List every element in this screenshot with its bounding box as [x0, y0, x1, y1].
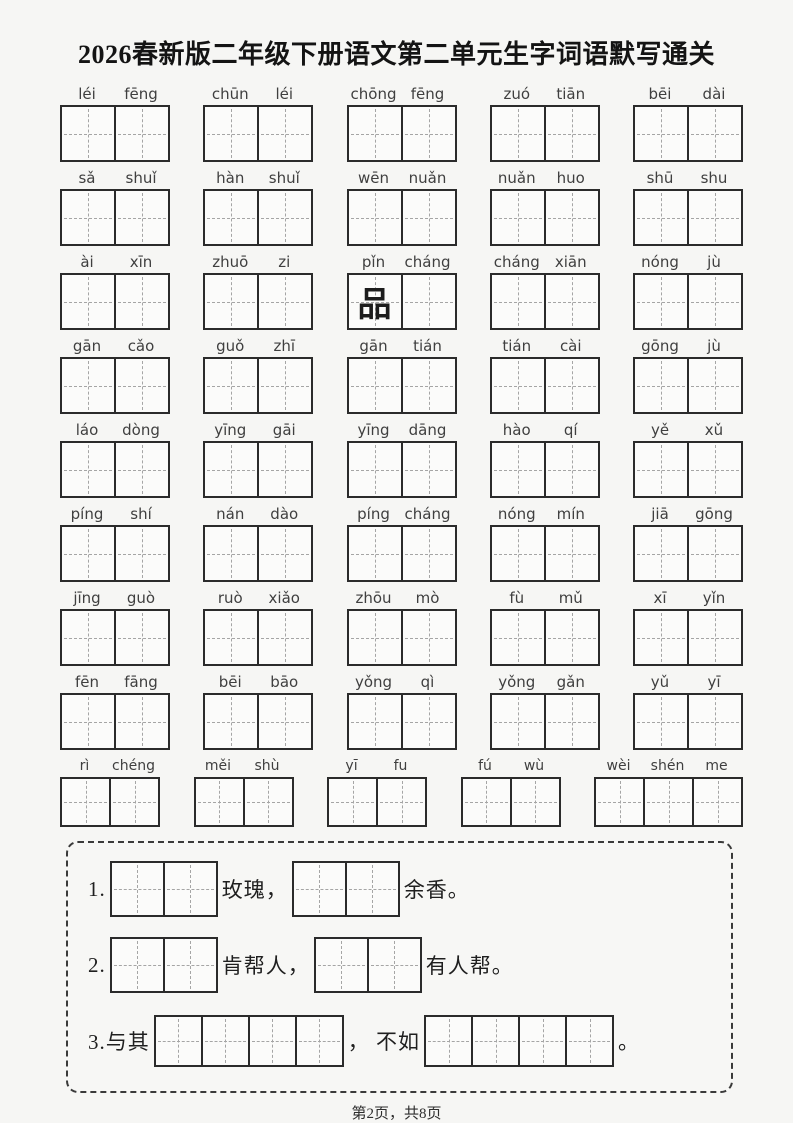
pinyin-syllable: xīn	[114, 253, 168, 271]
writing-box	[60, 357, 170, 414]
writing-cell	[243, 779, 292, 825]
pinyin-syllable: píng	[60, 505, 114, 523]
pinyin-row: yīnggāi	[203, 421, 313, 439]
writing-cell	[376, 779, 425, 825]
writing-cell	[205, 191, 257, 244]
writing-cell	[544, 443, 598, 496]
pinyin-row: nándào	[203, 505, 313, 523]
writing-cell	[205, 359, 257, 412]
pinyin-syllable: yǒng	[490, 673, 544, 691]
word-group: yīnggāi	[203, 421, 313, 498]
writing-cell	[687, 443, 741, 496]
pinyin-syllable: dòng	[114, 421, 168, 439]
writing-box	[490, 357, 600, 414]
pinyin-row: nóngjù	[633, 253, 743, 271]
pinyin-row: jiāgōng	[633, 505, 743, 523]
exercise-text: ， 不如	[348, 1026, 420, 1056]
writing-box	[60, 693, 170, 750]
writing-cell	[62, 275, 114, 328]
pinyin-syllable: nán	[203, 505, 257, 523]
word-row: léifēngchūnléichōngfēngzuótiānbēidài	[60, 85, 743, 162]
writing-cell	[109, 779, 158, 825]
writing-cell	[544, 107, 598, 160]
writing-box	[633, 693, 743, 750]
pinyin-row: xīyǐn	[633, 589, 743, 607]
exercise-item: 3.与其， 不如。	[88, 1011, 707, 1071]
word-group: gāncǎo	[60, 337, 170, 414]
writing-cell	[635, 527, 687, 580]
writing-cell	[492, 107, 544, 160]
writing-box	[203, 105, 313, 162]
writing-box	[490, 189, 600, 246]
word-group: rìchéng	[60, 757, 160, 827]
writing-cell	[62, 695, 114, 748]
word-group: jiāgōng	[633, 505, 743, 582]
exercise-item: 1.玫瑰，余香。	[88, 859, 707, 919]
pinyin-syllable: zi	[257, 253, 311, 271]
word-group: zhuōzi	[203, 253, 313, 330]
writing-cell	[114, 695, 168, 748]
writing-cell	[463, 779, 510, 825]
pinyin-syllable: yīng	[347, 421, 401, 439]
pinyin-syllable: hào	[490, 421, 544, 439]
word-group: zuótiān	[490, 85, 600, 162]
writing-cell	[492, 191, 544, 244]
pinyin-syllable: bēi	[633, 85, 687, 103]
answer-blank-boxes	[424, 1015, 614, 1067]
writing-cell	[596, 779, 643, 825]
writing-box	[347, 525, 457, 582]
word-group: shūshu	[633, 169, 743, 246]
writing-cell	[257, 527, 311, 580]
word-group: bēidài	[633, 85, 743, 162]
exercise-text: 3.与其	[88, 1026, 150, 1056]
writing-cell	[114, 611, 168, 664]
pinyin-row: hànshuǐ	[203, 169, 313, 187]
word-group: nóngjù	[633, 253, 743, 330]
writing-cell	[62, 527, 114, 580]
pinyin-row: wēnnuǎn	[347, 169, 457, 187]
word-group: xīyǐn	[633, 589, 743, 666]
pinyin-syllable: chōng	[347, 85, 401, 103]
pinyin-syllable: jiā	[633, 505, 687, 523]
writing-box	[490, 525, 600, 582]
pinyin-row: yǒnggǎn	[490, 673, 600, 691]
writing-cell	[687, 359, 741, 412]
writing-box	[633, 525, 743, 582]
writing-cell	[367, 939, 420, 991]
word-group: fúwù	[461, 757, 561, 827]
writing-box	[461, 777, 561, 827]
pinyin-row: měishù	[194, 757, 294, 775]
writing-cell	[687, 527, 741, 580]
writing-cell	[257, 695, 311, 748]
writing-cell	[401, 191, 455, 244]
word-group: láodòng	[60, 421, 170, 498]
writing-cell	[349, 527, 401, 580]
exercise-text: 肯帮人，	[222, 950, 310, 980]
word-row: píngshínándàopíngchángnóngmínjiāgōng	[60, 505, 743, 582]
pinyin-row: yǒngqì	[347, 673, 457, 691]
writing-box	[633, 441, 743, 498]
pinyin-syllable: xī	[633, 589, 687, 607]
writing-box	[60, 777, 160, 827]
writing-cell	[401, 527, 455, 580]
answer-blank-boxes	[110, 861, 218, 917]
writing-box	[490, 693, 600, 750]
writing-cell	[329, 779, 376, 825]
pinyin-syllable: shén	[643, 757, 692, 775]
pinyin-syllable: gān	[347, 337, 401, 355]
writing-box	[60, 273, 170, 330]
pinyin-row: hàoqí	[490, 421, 600, 439]
writing-cell	[518, 1017, 565, 1065]
pinyin-syllable: qí	[544, 421, 598, 439]
writing-cell	[635, 611, 687, 664]
writing-box	[203, 273, 313, 330]
word-group: gāntián	[347, 337, 457, 414]
writing-cell	[196, 779, 243, 825]
writing-cell	[62, 107, 114, 160]
pinyin-syllable: nuǎn	[401, 169, 455, 187]
word-grid: léifēngchūnléichōngfēngzuótiānbēidàisǎsh…	[60, 85, 743, 827]
writing-box	[347, 189, 457, 246]
writing-cell	[257, 191, 311, 244]
pinyin-syllable: zhuō	[203, 253, 257, 271]
pinyin-syllable: tián	[490, 337, 544, 355]
pinyin-row: zhōumò	[347, 589, 457, 607]
word-group: àixīn	[60, 253, 170, 330]
worksheet-page: 2026春新版二年级下册语文第二单元生字词语默写通关 léifēngchūnlé…	[0, 0, 793, 1122]
writing-cell	[492, 695, 544, 748]
pinyin-syllable: fú	[461, 757, 510, 775]
writing-cell	[544, 611, 598, 664]
word-group: yǒngqì	[347, 673, 457, 750]
pinyin-syllable: fēn	[60, 673, 114, 691]
pinyin-syllable: gān	[60, 337, 114, 355]
pinyin-row: fùmǔ	[490, 589, 600, 607]
pinyin-syllable: yī	[687, 673, 741, 691]
writing-cell	[205, 611, 257, 664]
pinyin-syllable: yě	[633, 421, 687, 439]
word-group: wēnnuǎn	[347, 169, 457, 246]
exercise-text: 。	[618, 1026, 640, 1056]
pinyin-row: bēibāo	[203, 673, 313, 691]
writing-cell	[492, 611, 544, 664]
pinyin-row: yěxǔ	[633, 421, 743, 439]
word-group: pǐncháng品	[347, 253, 457, 330]
pinyin-row: pǐncháng	[347, 253, 457, 271]
pinyin-syllable: zhī	[257, 337, 311, 355]
word-group: yǔyī	[633, 673, 743, 750]
word-group: ruòxiǎo	[203, 589, 313, 666]
pinyin-row: nuǎnhuo	[490, 169, 600, 187]
writing-cell	[492, 359, 544, 412]
pinyin-syllable: shuǐ	[114, 169, 168, 187]
pinyin-syllable: měi	[194, 757, 243, 775]
pinyin-row: tiáncài	[490, 337, 600, 355]
pinyin-syllable: léi	[60, 85, 114, 103]
writing-box	[194, 777, 294, 827]
pinyin-row: yīngdāng	[347, 421, 457, 439]
word-group: wèishénme	[594, 757, 743, 827]
pinyin-syllable: wēn	[347, 169, 401, 187]
writing-cell	[687, 107, 741, 160]
word-group: tiáncài	[490, 337, 600, 414]
pinyin-syllable: fu	[376, 757, 425, 775]
exercise-item: 2.肯帮人，有人帮。	[88, 935, 707, 995]
pinyin-syllable: me	[692, 757, 741, 775]
writing-cell	[257, 443, 311, 496]
writing-cell	[635, 443, 687, 496]
pinyin-syllable: fēng	[401, 85, 455, 103]
writing-cell	[205, 695, 257, 748]
pinyin-row: bēidài	[633, 85, 743, 103]
answer-blank-boxes	[292, 861, 400, 917]
pinyin-syllable: láo	[60, 421, 114, 439]
word-group: hànshuǐ	[203, 169, 313, 246]
pinyin-syllable: yǔ	[633, 673, 687, 691]
pinyin-syllable: jīng	[60, 589, 114, 607]
writing-box	[203, 357, 313, 414]
pinyin-row: gōngjù	[633, 337, 743, 355]
pinyin-syllable: zhōu	[347, 589, 401, 607]
pinyin-syllable: bāo	[257, 673, 311, 691]
writing-cell	[635, 107, 687, 160]
writing-cell	[635, 695, 687, 748]
writing-cell	[349, 611, 401, 664]
writing-cell	[156, 1017, 201, 1065]
writing-box	[60, 525, 170, 582]
pinyin-syllable: chéng	[109, 757, 158, 775]
pinyin-row: shūshu	[633, 169, 743, 187]
writing-cell	[62, 443, 114, 496]
writing-cell	[345, 863, 398, 915]
writing-box	[347, 609, 457, 666]
writing-box	[594, 777, 743, 827]
page-number: 第2页，共8页	[0, 1102, 793, 1123]
writing-cell	[544, 191, 598, 244]
word-group: nóngmín	[490, 505, 600, 582]
writing-cell	[401, 359, 455, 412]
pinyin-syllable: nuǎn	[490, 169, 544, 187]
writing-box	[633, 189, 743, 246]
word-group: sǎshuǐ	[60, 169, 170, 246]
pinyin-syllable: yī	[327, 757, 376, 775]
writing-cell	[565, 1017, 612, 1065]
pinyin-syllable: yīng	[203, 421, 257, 439]
writing-cell	[492, 527, 544, 580]
pinyin-syllable: shù	[243, 757, 292, 775]
writing-cell	[257, 107, 311, 160]
writing-cell	[114, 527, 168, 580]
writing-cell	[687, 275, 741, 328]
writing-cell	[471, 1017, 518, 1065]
writing-cell	[492, 275, 544, 328]
pinyin-syllable: mǔ	[544, 589, 598, 607]
writing-cell	[544, 275, 598, 328]
pinyin-syllable: rì	[60, 757, 109, 775]
page-title: 2026春新版二年级下册语文第二单元生字词语默写通关	[0, 0, 793, 71]
writing-box	[633, 357, 743, 414]
pinyin-row: guǒzhī	[203, 337, 313, 355]
writing-box	[60, 189, 170, 246]
pinyin-row: yīfu	[327, 757, 427, 775]
exercise-text: 有人帮。	[426, 950, 514, 980]
pinyin-row: ruòxiǎo	[203, 589, 313, 607]
pinyin-syllable: fāng	[114, 673, 168, 691]
word-group: chūnléi	[203, 85, 313, 162]
word-row: gāncǎoguǒzhīgāntiántiáncàigōngjù	[60, 337, 743, 414]
writing-box	[203, 441, 313, 498]
pinyin-row: zhuōzi	[203, 253, 313, 271]
writing-cell	[349, 107, 401, 160]
word-group: chōngfēng	[347, 85, 457, 162]
pinyin-syllable: chūn	[203, 85, 257, 103]
writing-cell	[62, 191, 114, 244]
pinyin-syllable: nóng	[633, 253, 687, 271]
writing-cell	[687, 611, 741, 664]
answer-blank-boxes	[314, 937, 422, 993]
exercise-text: 玫瑰，	[222, 874, 288, 904]
writing-cell	[635, 359, 687, 412]
pinyin-syllable: zuó	[490, 85, 544, 103]
pinyin-syllable: pǐn	[347, 253, 401, 271]
filled-character: 品	[349, 275, 401, 328]
pinyin-syllable: huo	[544, 169, 598, 187]
pinyin-syllable: gōng	[687, 505, 741, 523]
pinyin-syllable: ruò	[203, 589, 257, 607]
pinyin-syllable: shu	[687, 169, 741, 187]
word-group: yěxǔ	[633, 421, 743, 498]
pinyin-syllable: cháng	[401, 505, 455, 523]
writing-cell	[112, 939, 163, 991]
pinyin-syllable: nóng	[490, 505, 544, 523]
writing-box	[490, 273, 600, 330]
writing-cell	[401, 611, 455, 664]
pinyin-syllable: cháng	[401, 253, 455, 271]
word-group: měishù	[194, 757, 294, 827]
writing-cell	[692, 779, 741, 825]
pinyin-row: chūnléi	[203, 85, 313, 103]
writing-cell	[201, 1017, 248, 1065]
writing-box	[633, 273, 743, 330]
writing-cell	[349, 359, 401, 412]
writing-box	[347, 357, 457, 414]
writing-cell	[544, 695, 598, 748]
writing-cell	[205, 275, 257, 328]
writing-cell	[248, 1017, 295, 1065]
pinyin-syllable: yǒng	[347, 673, 401, 691]
pinyin-row: àixīn	[60, 253, 170, 271]
word-row: àixīnzhuōzipǐncháng品chángxiānnóngjù	[60, 253, 743, 330]
pinyin-syllable: dāng	[401, 421, 455, 439]
pinyin-row: rìchéng	[60, 757, 160, 775]
writing-cell	[544, 527, 598, 580]
writing-cell	[257, 275, 311, 328]
writing-box	[490, 105, 600, 162]
writing-cell	[114, 191, 168, 244]
pinyin-row: jīngguò	[60, 589, 170, 607]
writing-cell	[316, 939, 367, 991]
writing-box	[327, 777, 427, 827]
word-group: fùmǔ	[490, 589, 600, 666]
pinyin-row: wèishénme	[594, 757, 743, 775]
writing-box	[60, 105, 170, 162]
pinyin-row: píngshí	[60, 505, 170, 523]
word-row: jīngguòruòxiǎozhōumòfùmǔxīyǐn	[60, 589, 743, 666]
writing-cell	[687, 695, 741, 748]
writing-box	[60, 609, 170, 666]
writing-box	[633, 105, 743, 162]
writing-box	[490, 609, 600, 666]
writing-cell	[62, 779, 109, 825]
writing-cell	[349, 443, 401, 496]
pinyin-syllable: jù	[687, 253, 741, 271]
pinyin-syllable: gōng	[633, 337, 687, 355]
word-group: yīngdāng	[347, 421, 457, 498]
word-row: rìchéngměishùyīfufúwùwèishénme	[60, 757, 743, 827]
writing-box	[203, 609, 313, 666]
pinyin-row: píngcháng	[347, 505, 457, 523]
pinyin-syllable: ài	[60, 253, 114, 271]
pinyin-syllable: qì	[401, 673, 455, 691]
pinyin-syllable: wù	[510, 757, 559, 775]
word-group: bēibāo	[203, 673, 313, 750]
writing-cell	[635, 275, 687, 328]
word-group: yīfu	[327, 757, 427, 827]
pinyin-row: zuótiān	[490, 85, 600, 103]
writing-cell	[492, 443, 544, 496]
pinyin-row: chōngfēng	[347, 85, 457, 103]
pinyin-syllable: jù	[687, 337, 741, 355]
word-group: jīngguò	[60, 589, 170, 666]
writing-cell	[635, 191, 687, 244]
writing-cell: 品	[349, 275, 401, 328]
writing-box	[203, 693, 313, 750]
writing-cell	[510, 779, 559, 825]
pinyin-syllable: sǎ	[60, 169, 114, 187]
pinyin-syllable: mín	[544, 505, 598, 523]
writing-cell	[294, 863, 345, 915]
answer-blank-boxes	[154, 1015, 344, 1067]
writing-cell	[257, 611, 311, 664]
pinyin-row: gāntián	[347, 337, 457, 355]
word-group: chángxiān	[490, 253, 600, 330]
writing-cell	[401, 695, 455, 748]
writing-cell	[295, 1017, 342, 1065]
writing-cell	[205, 107, 257, 160]
pinyin-row: yǔyī	[633, 673, 743, 691]
word-group: píngshí	[60, 505, 170, 582]
pinyin-syllable: tiān	[544, 85, 598, 103]
pinyin-syllable: píng	[347, 505, 401, 523]
pinyin-syllable: xiǎo	[257, 589, 311, 607]
word-group: nándào	[203, 505, 313, 582]
writing-cell	[257, 359, 311, 412]
writing-cell	[205, 443, 257, 496]
pinyin-syllable: léi	[257, 85, 311, 103]
pinyin-syllable: xǔ	[687, 421, 741, 439]
pinyin-row: sǎshuǐ	[60, 169, 170, 187]
writing-cell	[112, 863, 163, 915]
pinyin-syllable: dào	[257, 505, 311, 523]
pinyin-row: chángxiān	[490, 253, 600, 271]
exercise-text: 余香。	[404, 874, 470, 904]
pinyin-syllable: shuǐ	[257, 169, 311, 187]
writing-cell	[544, 359, 598, 412]
writing-cell	[205, 527, 257, 580]
